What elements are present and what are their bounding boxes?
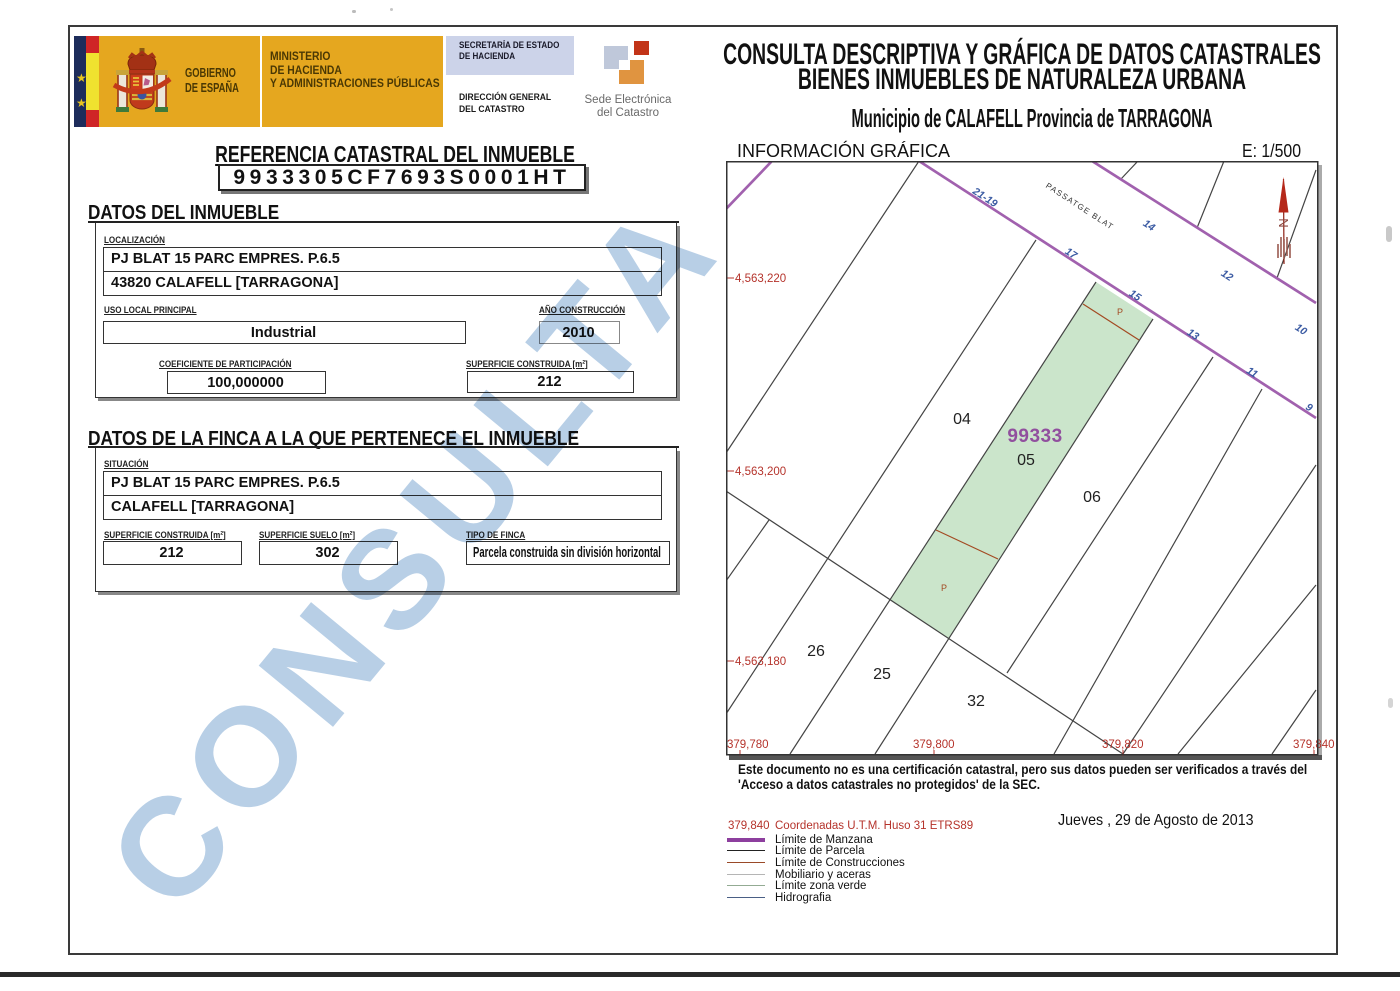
svg-text:04: 04 xyxy=(953,411,971,428)
svg-text:32: 32 xyxy=(967,693,985,710)
svg-text:14: 14 xyxy=(1141,217,1157,234)
svg-text:N: N xyxy=(1276,218,1291,227)
svg-text:4,563,200: 4,563,200 xyxy=(735,466,786,478)
svg-text:379,780: 379,780 xyxy=(727,739,769,751)
svg-text:379,840: 379,840 xyxy=(1293,739,1335,751)
svg-text:379,800: 379,800 xyxy=(913,739,955,751)
svg-text:P: P xyxy=(1117,307,1123,317)
svg-text:21-19: 21-19 xyxy=(970,185,1000,210)
svg-text:05: 05 xyxy=(1017,452,1035,469)
svg-text:06: 06 xyxy=(1083,489,1101,506)
svg-text:17: 17 xyxy=(1063,245,1080,262)
svg-text:379,820: 379,820 xyxy=(1102,739,1144,751)
svg-text:26: 26 xyxy=(807,643,825,660)
svg-text:11: 11 xyxy=(1244,365,1260,381)
svg-text:P: P xyxy=(941,583,947,593)
svg-text:99333: 99333 xyxy=(1007,426,1062,447)
svg-text:15: 15 xyxy=(1127,287,1143,304)
svg-text:10: 10 xyxy=(1293,321,1309,338)
svg-text:12: 12 xyxy=(1219,267,1235,284)
svg-text:PASSATGE BLAT: PASSATGE BLAT xyxy=(1044,181,1115,232)
svg-text:4,563,180: 4,563,180 xyxy=(735,656,786,668)
svg-text:25: 25 xyxy=(873,666,891,683)
